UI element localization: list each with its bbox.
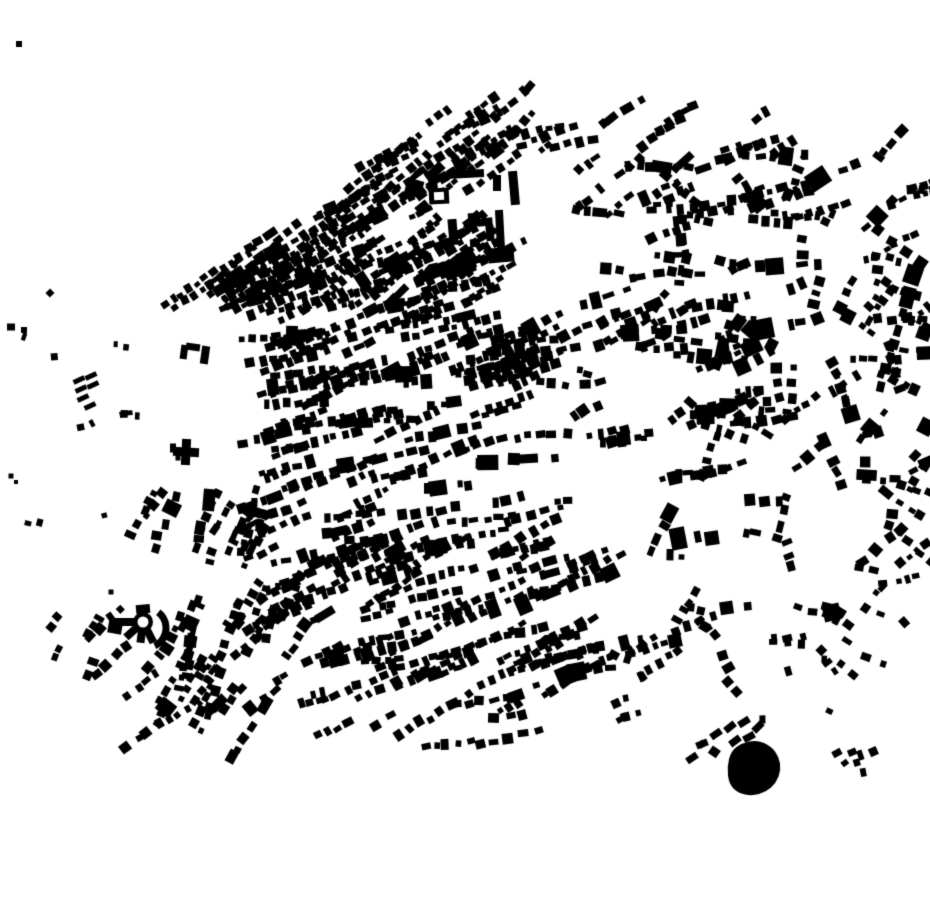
- building-footprint-canvas: [0, 0, 930, 924]
- figure-ground-map: [0, 0, 930, 924]
